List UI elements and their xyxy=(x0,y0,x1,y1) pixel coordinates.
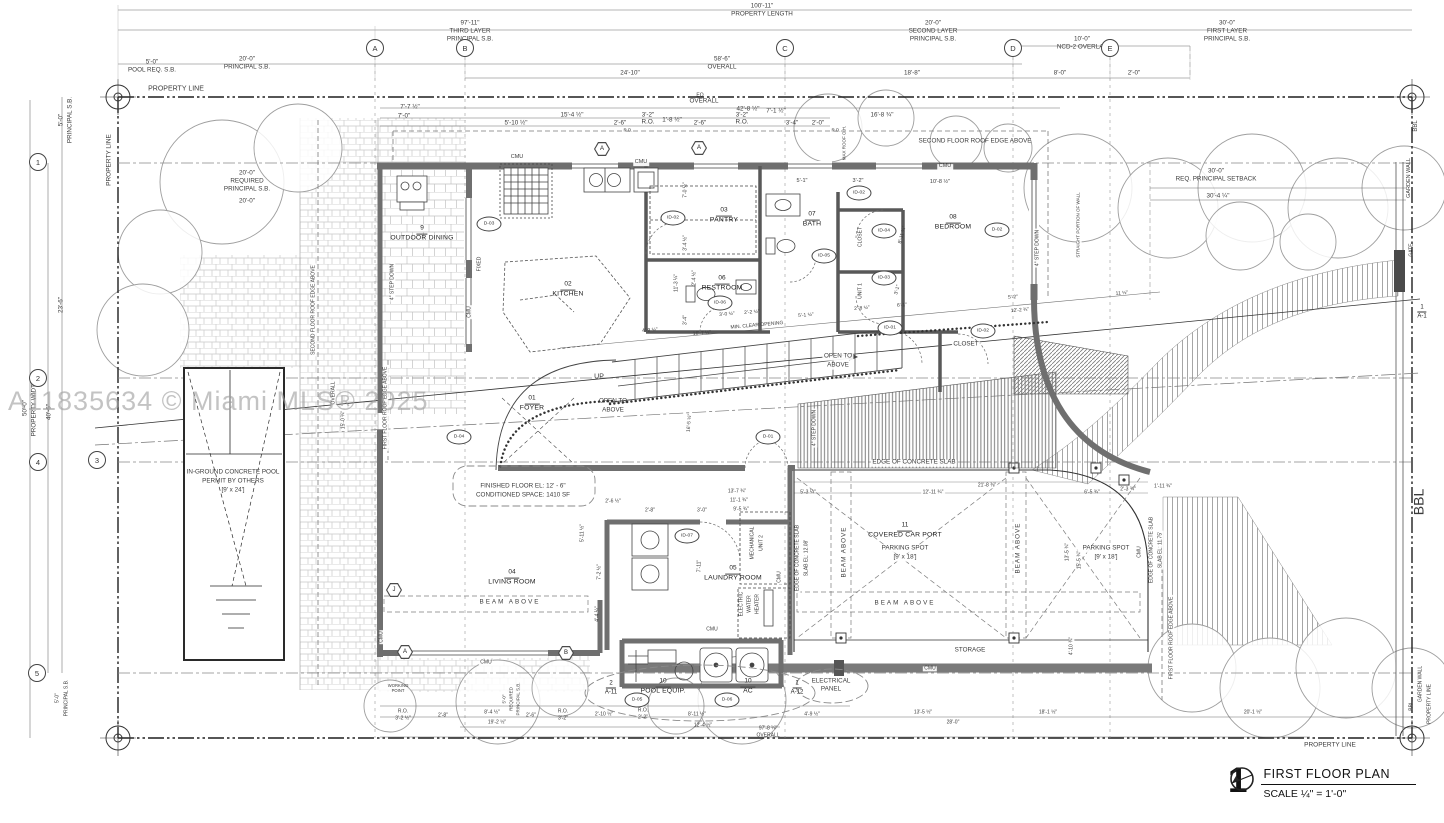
drawing-title: FIRST FLOOR PLAN xyxy=(1261,765,1416,785)
annotation-label: 8'-11 ¼" xyxy=(898,226,908,245)
annotation-label: 12'-2 ¾" xyxy=(1011,308,1030,315)
annotation-label: WATER xyxy=(747,595,752,613)
grid-bubble-D: D xyxy=(1004,39,1022,57)
annotation-label: 2'-6 ½" xyxy=(605,499,621,504)
annotation-label: REQ. PRINCIPAL SETBACK xyxy=(1176,177,1257,184)
annotation-label: 58'-6" xyxy=(714,57,730,64)
annotation-label: CMU xyxy=(777,570,782,584)
opening-marker-id-01: ID-01 xyxy=(878,321,903,336)
annotation-label: 20'-0" xyxy=(239,57,255,64)
annotation-label: OVERALL xyxy=(707,65,736,72)
annotation-label: 15'-4 ½" xyxy=(560,113,583,120)
annotation-label: BEAM ABOVE xyxy=(478,600,542,607)
section-marker-a-1: 1A-1 xyxy=(1417,305,1426,320)
annotation-label: CONDITIONED SPACE: 1410 SF xyxy=(476,493,570,500)
annotation-label: 2'-0" xyxy=(1128,71,1141,78)
annotation-label: 3'-4" xyxy=(786,121,799,128)
grid-bubble-2: 2 xyxy=(29,369,47,387)
annotation-label: 10'-8 ½" xyxy=(930,180,950,186)
hex-marker-A: A xyxy=(594,142,610,156)
annotation-label: CMU xyxy=(1137,545,1142,559)
annotation-label: PROPERTY LINE xyxy=(148,85,204,92)
annotation-label: HEATER xyxy=(755,594,760,614)
annotation-label: 4" STEP DOWN xyxy=(390,262,395,301)
annotation-label: 20'-0" xyxy=(239,199,255,206)
annotation-label: 2'-3 ¾" xyxy=(1120,487,1136,492)
annotation-label: OVERALL xyxy=(689,99,718,106)
annotation-label: 1'-11 ¾" xyxy=(1154,484,1172,489)
annotation-label: BBL xyxy=(1413,120,1419,131)
annotation-label: CMU xyxy=(479,660,493,665)
annotation-label: CMU xyxy=(509,155,525,161)
annotation-label: 10'-0" xyxy=(1074,37,1090,44)
annotation-label: 1'-8 ½" xyxy=(662,118,682,125)
annotation-label: CMU xyxy=(467,305,472,319)
annotation-label: STORAGE xyxy=(953,648,987,655)
annotation-label: 97'-8 ¼" xyxy=(759,726,777,731)
annotation-label: R.O. xyxy=(558,709,568,714)
annotation-label: UP xyxy=(594,373,604,380)
annotation-label: 15'-5 ¾" xyxy=(1077,549,1082,570)
opening-marker-id-05: ID-05 xyxy=(812,249,837,264)
annotation-label: [9' x 18'] xyxy=(1093,555,1119,562)
annotation-label: 2'-8" xyxy=(438,713,448,718)
annotation-label: 4" STEP DOWN xyxy=(812,408,817,447)
annotation-label: 7'-1 ½" xyxy=(766,109,786,116)
annotation-label: 3'-2" xyxy=(853,179,864,185)
hex-marker-A: A xyxy=(397,645,413,659)
annotation-label: R.O. xyxy=(398,709,408,714)
annotation-label: 30'-0" xyxy=(1219,21,1235,28)
annotation-label: 9'-5 ¾" xyxy=(733,507,749,512)
annotation-label: BBL xyxy=(1409,701,1414,710)
annotation-label: 3'-4 ½" xyxy=(683,235,688,251)
annotation-label: CMU xyxy=(379,630,384,644)
opening-marker-id-02: ID-02 xyxy=(661,211,686,226)
annotation-label: 100'-11" xyxy=(751,4,774,11)
annotation-label: GATE xyxy=(1409,243,1414,256)
annotation-label: POOL REQ. S.B. xyxy=(128,68,176,75)
annotation-label: PARKING SPOT xyxy=(880,546,930,553)
grid-bubble-1: 1 xyxy=(29,153,47,171)
annotation-label: 8'-4 ½" xyxy=(484,710,500,715)
annotation-label: CLOSET xyxy=(858,227,863,247)
room-label-pool-equip: 10POOL EQUIP. xyxy=(641,679,686,696)
annotation-label: THIRD LAYER xyxy=(449,29,490,36)
annotation-label: ELECTRICAL xyxy=(812,679,851,686)
annotation-label: [9' x 18'] xyxy=(892,555,918,562)
annotation-label: 2'-2 ½" xyxy=(744,310,760,317)
annotation-label: 24'-10" xyxy=(620,71,640,78)
annotation-label: 2'-8" xyxy=(645,508,655,513)
annotation-label: 4'-9 ½" xyxy=(804,712,820,717)
grid-bubble-A: A xyxy=(366,39,384,57)
annotation-label: 5'-3 ¼" xyxy=(800,490,816,495)
annotation-label: 4'-10 ¾" xyxy=(1069,635,1074,656)
annotation-label: FIXED xyxy=(477,257,482,272)
annotation-label: 3'-2" xyxy=(558,716,568,721)
annotation-label: EDGE OF CONCRETE SLAB xyxy=(871,460,957,467)
annotation-label: R.D. xyxy=(624,129,633,134)
annotation-label: 3'-0 ½" xyxy=(719,312,735,319)
annotation-label: PROPERTY LINE xyxy=(1427,684,1432,724)
room-label-living-room: 04LIVING ROOM xyxy=(488,570,536,587)
annotation-label: IN-GROUND CONCRETE POOL xyxy=(187,470,280,477)
annotation-label: SECOND FLOOR ROOF EDGE ABOVE xyxy=(918,139,1031,146)
room-label-bath: 07BATH xyxy=(803,212,821,229)
annotation-label: 13'-5 ½" xyxy=(914,710,932,715)
annotation-label: 4'-4 ¼" xyxy=(595,606,600,622)
annotation-label: SECOND FLOOR ROOF EDGE ABOVE xyxy=(311,264,316,357)
annotation-label: R.O. xyxy=(642,120,655,127)
annotation-label: R.O. xyxy=(736,120,749,127)
annotation-label: ELECTRIC xyxy=(739,592,744,617)
room-label-covered-car-port: 11COVERED CAR PORT xyxy=(868,523,942,540)
annotation-label: POINT xyxy=(392,689,405,693)
annotation-label: 20'-1 ½" xyxy=(1244,710,1262,715)
annotation-label: PERMIT BY OTHERS xyxy=(202,479,264,486)
annotation-label: 5'-0" xyxy=(503,695,508,704)
annotation-label: 5'-0" xyxy=(146,60,159,67)
opening-marker-id-06: ID-06 xyxy=(708,296,733,311)
annotation-label: 6'-1" xyxy=(897,303,907,309)
annotation-label: 2'-6" xyxy=(614,121,627,128)
grid-bubble-3: 3 xyxy=(88,451,106,469)
annotation-label: 2'-8 ½" xyxy=(854,306,870,313)
annotation-label: R.D. xyxy=(832,129,841,134)
annotation-label: 6'-5 ¾" xyxy=(1084,490,1100,495)
annotation-label: 20'-0" xyxy=(239,171,255,178)
annotation-label: 7'-2 ½" xyxy=(597,564,602,580)
mls-watermark: A11835634 © Miami MLS® 2025 xyxy=(8,386,429,417)
annotation-label: 7'-0 ½" xyxy=(683,182,688,198)
annotation-label: SLAB EL: 12.08' xyxy=(804,538,809,578)
annotation-label: 13'-5 ¾" xyxy=(1065,541,1070,562)
annotation-label: 8'-0" xyxy=(1054,71,1067,78)
annotation-label: MECHANICAL xyxy=(750,527,755,560)
annotation-label: 11'-3 ¼" xyxy=(674,274,679,292)
grid-bubble-E: E xyxy=(1101,39,1119,57)
annotation-label: SLAB EL: 11.75' xyxy=(1158,530,1163,569)
annotation-label: [9' x 24'] xyxy=(221,488,244,495)
annotation-label: 30'-4 ¼" xyxy=(1206,194,1229,201)
annotation-label: 13'-7 ¾" xyxy=(728,489,746,494)
annotation-label: UNIT 2 xyxy=(759,535,764,551)
room-label-pantry: 03PANTRY xyxy=(710,208,738,225)
annotation-label: OPEN TO xyxy=(822,354,853,361)
opening-marker-d-05: D-05 xyxy=(625,693,650,708)
opening-marker-d-02: D-02 xyxy=(985,223,1010,238)
annotation-label: R.O. xyxy=(638,708,648,713)
annotation-label: PARKING SPOT xyxy=(1081,546,1131,553)
annotation-label: ABOVE xyxy=(826,363,851,370)
annotation-label: ABOVE xyxy=(602,408,624,415)
annotation-label: 3'-1" xyxy=(894,285,902,296)
room-label-restroom: 06RESTROOM xyxy=(702,276,743,293)
annotation-label: 3'-4" xyxy=(683,315,688,325)
annotation-label: 2'-6" xyxy=(694,121,707,128)
annotation-label: 4'-9 ½" xyxy=(642,328,658,335)
annotation-label: 97'-11" xyxy=(460,21,479,28)
opening-marker-id-02: ID-02 xyxy=(971,324,996,339)
annotation-label: 3'-2 ½" xyxy=(395,716,411,721)
annotation-label: 5'-1" xyxy=(797,179,808,185)
title-block: 1 FIRST FLOOR PLAN SCALE ¼" = 1'-0" xyxy=(1228,765,1426,800)
opening-marker-id-07: ID-07 xyxy=(675,529,700,544)
annotation-label: 23'-6" xyxy=(59,297,66,313)
grid-bubble-C: C xyxy=(776,39,794,57)
annotation-label: BEAM ABOVE xyxy=(842,525,849,579)
grid-bubble-4: 4 xyxy=(29,453,47,471)
annotation-label: 12'-11 ¾" xyxy=(921,490,945,495)
annotation-label: PROPERTY LINE xyxy=(1304,743,1356,750)
annotation-label: REQUIRED xyxy=(510,687,515,711)
opening-marker-d-01: D-01 xyxy=(756,430,781,445)
annotation-label: 5'-10 ½" xyxy=(504,121,527,128)
opening-marker-id-04: ID-04 xyxy=(872,224,897,239)
annotation-label: PRINCIPAL S.B. xyxy=(517,682,522,715)
room-label-kitchen: 02KITCHEN xyxy=(552,282,583,299)
annotation-label: 19'-2 ½" xyxy=(488,720,506,725)
drawing-scale: SCALE ¼" = 1'-0" xyxy=(1261,785,1416,800)
annotation-label: NCD-2 OVERLAY xyxy=(1057,45,1107,52)
annotation-label: CLOSET xyxy=(952,342,980,349)
annotation-label: BBL xyxy=(1412,489,1427,515)
annotation-label: 11 ½" xyxy=(1116,291,1129,297)
annotation-label: 5'-1 ½" xyxy=(798,313,814,320)
annotation-label: GARDEN WALL xyxy=(1407,158,1413,198)
annotation-label: 2'-10 ½" xyxy=(595,712,613,717)
annotation-label: SECOND LAYER xyxy=(909,29,958,36)
room-label-foyer: 01FOYER xyxy=(520,396,544,413)
annotation-label: 16'-7 ½" xyxy=(693,331,712,338)
annotation-label: OPEN TO xyxy=(599,399,627,406)
opening-marker-d-03: D-03 xyxy=(477,217,502,232)
annotation-label: PRINCIPAL S.B. xyxy=(64,680,69,717)
hex-marker-J: J xyxy=(386,583,402,597)
annotation-label: 5'-2" xyxy=(1008,295,1018,301)
room-label-laundry-room: 05LAUNDRY ROOM xyxy=(704,566,762,583)
annotation-label: 18'-1 ½" xyxy=(1039,710,1057,715)
annotation-label: FIRST LAYER xyxy=(1207,29,1247,36)
annotation-label: UNIT 1 xyxy=(858,283,863,299)
annotation-label: FIRST FLOOR ROOF EDGE ABOVE xyxy=(1169,595,1174,681)
opening-marker-d-06: D-06 xyxy=(715,693,740,708)
annotation-label: REQUIRED xyxy=(230,179,263,186)
annotation-label: 7'-7 ½" xyxy=(400,105,420,112)
annotation-label: 11'-1 ¾" xyxy=(730,498,748,503)
annotation-label: 2'-0" xyxy=(812,121,825,128)
annotation-label: BEAM ABOVE xyxy=(1016,521,1023,575)
annotation-label: OVERALL xyxy=(756,733,779,738)
grid-bubble-5: 5 xyxy=(28,664,46,682)
opening-marker-id-02: ID-02 xyxy=(847,186,872,201)
annotation-label: 18'-8" xyxy=(904,71,920,78)
room-label-outdoor-dining: 9OUTDOOR DINING xyxy=(390,226,453,243)
annotation-label: PRINCIPAL S.B. xyxy=(910,37,956,44)
room-label-bedroom: 08BEDROOM xyxy=(935,215,972,232)
opening-marker-d-04: D-04 xyxy=(447,430,472,445)
annotation-label: PROPERTY LINE xyxy=(107,134,114,186)
annotation-label: 16'-5 ½" xyxy=(687,414,694,433)
annotation-label: CMU xyxy=(633,160,649,166)
annotation-label: CMU xyxy=(923,666,937,671)
annotation-label: 7'-0" xyxy=(398,114,411,121)
annotation-label: BEAM ABOVE xyxy=(873,601,937,608)
annotation-label: PRINCIPAL S.B. xyxy=(68,97,75,143)
section-marker-a-11: 2A-11 xyxy=(605,681,617,696)
annotation-label: 2'-4 ½" xyxy=(692,270,697,286)
annotation-label: 5'-11 ½" xyxy=(580,524,585,542)
section-marker-a-12: 1A-12 xyxy=(791,681,804,696)
annotation-label: MIN. CLEAR OPENING xyxy=(730,321,783,331)
annotation-label: 5'-0" xyxy=(59,114,66,127)
annotation-label: EDGE OF CONCRETE SLAB xyxy=(795,523,800,592)
annotation-label: PROPERTY LENGTH xyxy=(731,12,793,19)
annotation-label: MAX ROOF O.H. xyxy=(843,126,848,161)
annotation-label: PRINCIPAL S.B. xyxy=(224,65,270,72)
annotation-label: 2'-6" xyxy=(526,713,536,718)
annotation-label: 5'-0" xyxy=(55,693,60,703)
annotation-label: 4" STEP DOWN xyxy=(1035,228,1040,267)
annotation-label: 30'-0" xyxy=(1208,169,1224,176)
annotation-label: 16'-8 ¾" xyxy=(870,113,893,120)
annotation-label: 2'-2" xyxy=(638,715,648,720)
annotation-label: 20'-0" xyxy=(925,21,941,28)
opening-marker-id-03: ID-03 xyxy=(872,271,897,286)
grid-bubble-B: B xyxy=(456,39,474,57)
annotation-label: STRAIGHT PORTION OF WALL xyxy=(1077,191,1082,259)
annotation-label: PANEL xyxy=(821,687,841,694)
annotation-label: CMU xyxy=(937,164,953,170)
annotation-label: 21'-8 ⅜" xyxy=(976,483,997,488)
annotation-label: EDGE OF CONCRETE SLAB xyxy=(1149,515,1154,584)
annotation-label: CMU xyxy=(705,627,719,632)
annotation-label: PRINCIPAL S.B. xyxy=(1204,37,1250,44)
annotation-label: 28'-0" xyxy=(947,720,960,725)
floor-plan-sheet: 100'-11"PROPERTY LENGTH97'-11"THIRD LAYE… xyxy=(0,0,1444,823)
annotation-label: 8'-11 ½" xyxy=(688,712,706,717)
annotation-label: GARDEN WALL xyxy=(1418,666,1423,702)
hex-marker-B: B xyxy=(558,646,574,660)
room-label-ac: 10AC xyxy=(740,679,755,696)
annotation-label: 3'-0" xyxy=(697,508,707,513)
annotation-label: 12'-4 ½" xyxy=(694,723,712,728)
annotation-label: 7'-11" xyxy=(697,560,702,572)
annotation-label: PRINCIPAL S.B. xyxy=(224,187,270,194)
annotation-label: FINISHED FLOOR EL: 12' - 6" xyxy=(480,484,565,491)
hex-marker-A: A xyxy=(691,141,707,155)
